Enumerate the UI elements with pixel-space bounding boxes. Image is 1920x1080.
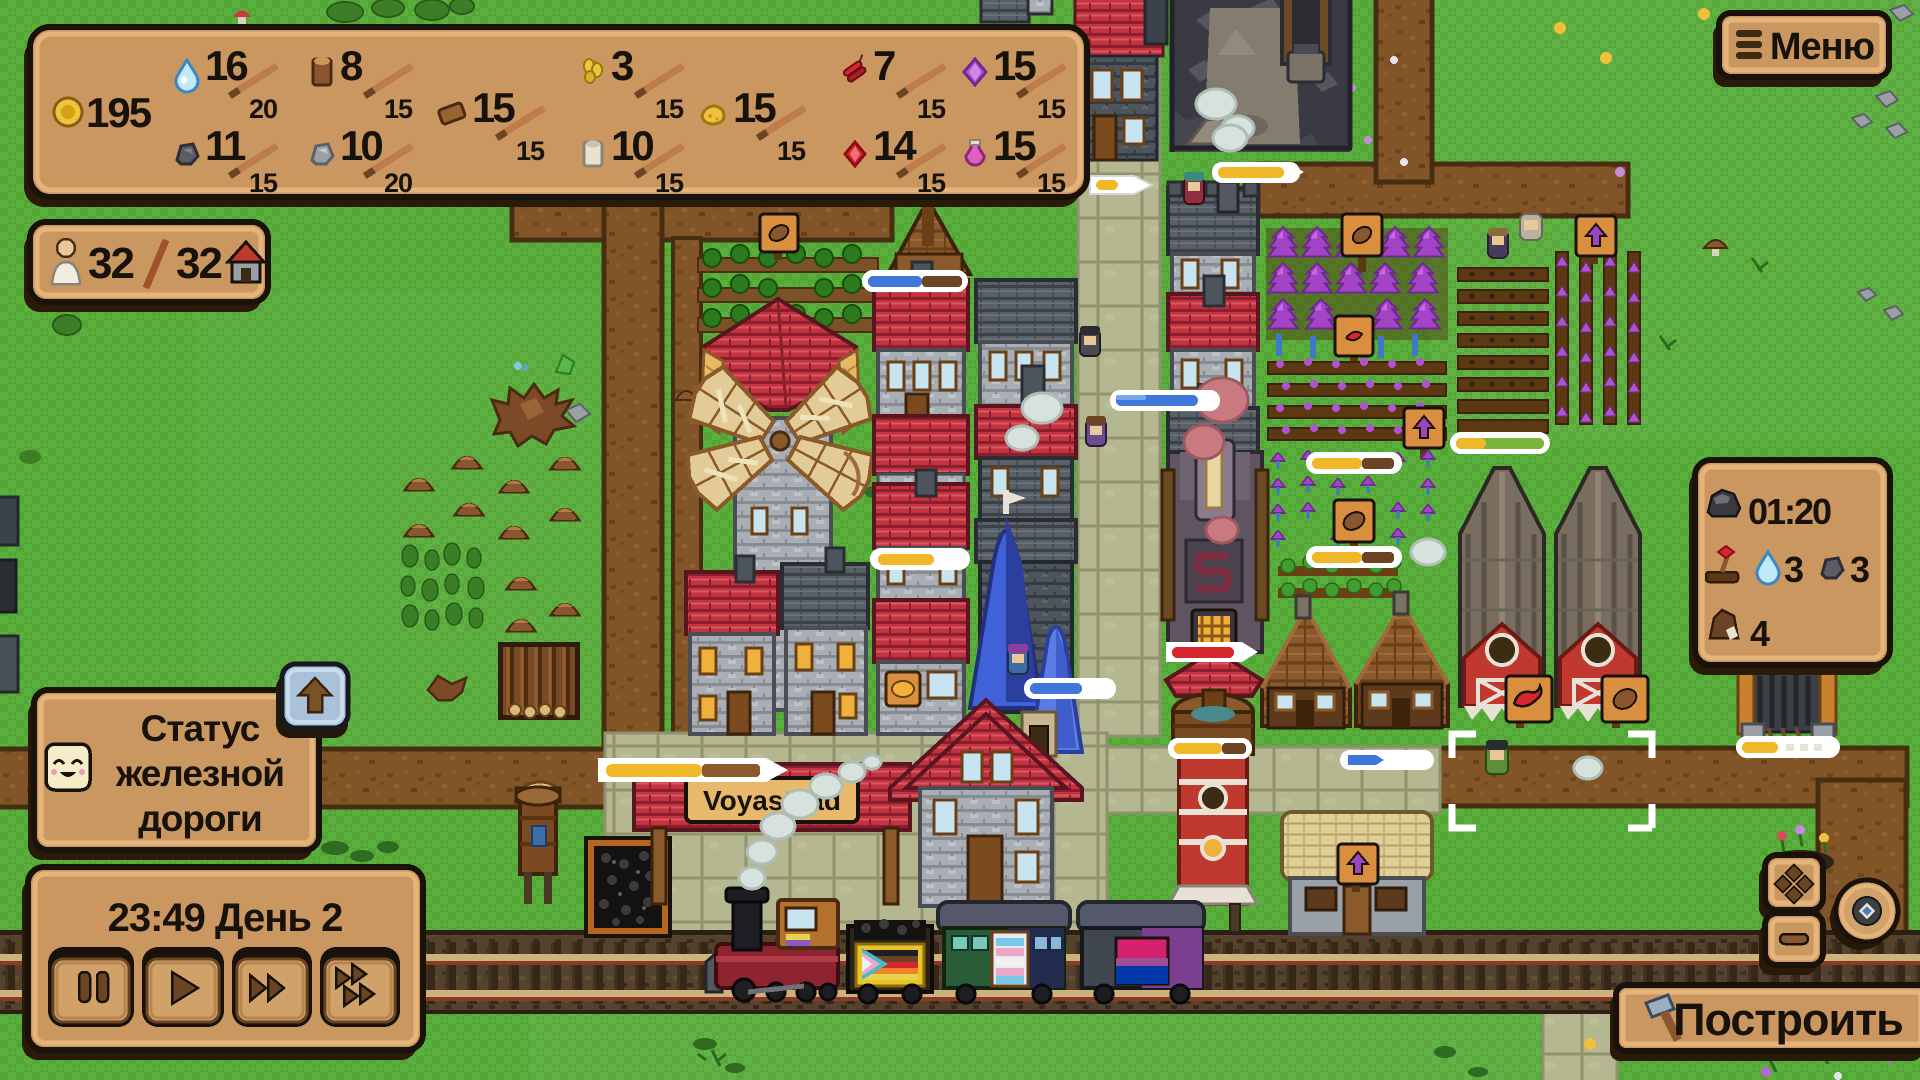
- svg-text:15: 15: [516, 136, 545, 166]
- svg-text:16: 16: [205, 42, 247, 89]
- svg-text:15: 15: [733, 84, 776, 131]
- svg-text:железной: железной: [115, 753, 284, 794]
- svg-text:15: 15: [993, 42, 1036, 89]
- svg-text:15: 15: [777, 136, 806, 166]
- svg-text:4: 4: [1750, 613, 1770, 654]
- svg-text:195: 195: [86, 89, 152, 136]
- svg-text:01:20: 01:20: [1748, 491, 1831, 532]
- svg-text:15: 15: [917, 94, 946, 124]
- svg-text:7: 7: [873, 42, 895, 89]
- svg-text:15: 15: [384, 94, 413, 124]
- svg-text:15: 15: [249, 168, 278, 198]
- svg-text:3: 3: [1784, 549, 1804, 590]
- svg-text:8: 8: [340, 42, 363, 89]
- svg-text:15: 15: [472, 84, 515, 131]
- svg-text:14: 14: [873, 122, 917, 169]
- svg-text:Статус: Статус: [141, 708, 260, 749]
- svg-text:10: 10: [340, 122, 382, 169]
- svg-text:11: 11: [205, 122, 246, 169]
- svg-text:20: 20: [384, 168, 412, 198]
- svg-text:Меню: Меню: [1770, 26, 1874, 68]
- svg-text:23:49 День 2: 23:49 День 2: [108, 896, 343, 940]
- svg-text:32: 32: [88, 239, 133, 288]
- svg-text:15: 15: [993, 122, 1036, 169]
- svg-text:32: 32: [176, 239, 221, 288]
- svg-text:20: 20: [249, 94, 277, 124]
- svg-text:15: 15: [917, 168, 946, 198]
- svg-text:3: 3: [1850, 549, 1870, 590]
- svg-text:15: 15: [655, 94, 684, 124]
- svg-text:15: 15: [655, 168, 684, 198]
- svg-text:3: 3: [611, 42, 633, 89]
- svg-text:Построить: Построить: [1673, 994, 1903, 1045]
- svg-text:10: 10: [611, 122, 653, 169]
- svg-text:15: 15: [1037, 168, 1066, 198]
- svg-text:15: 15: [1037, 94, 1066, 124]
- svg-text:дороги: дороги: [138, 798, 261, 839]
